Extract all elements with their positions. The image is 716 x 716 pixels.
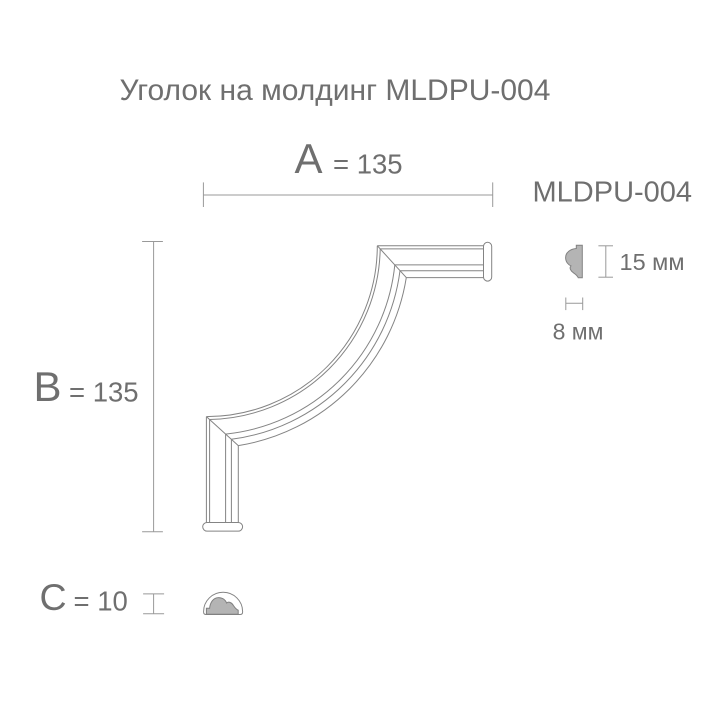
svg-text:A: A bbox=[295, 135, 323, 182]
svg-text:8 мм: 8 мм bbox=[553, 319, 604, 345]
svg-text:= 135: = 135 bbox=[69, 377, 139, 408]
svg-text:B: B bbox=[34, 363, 62, 410]
svg-text:C: C bbox=[40, 576, 67, 618]
svg-text:Уголок на молдинг MLDPU-004: Уголок на молдинг MLDPU-004 bbox=[120, 74, 551, 107]
svg-text:= 10: = 10 bbox=[74, 586, 128, 617]
svg-text:15 мм: 15 мм bbox=[620, 249, 685, 275]
svg-text:= 135: = 135 bbox=[333, 148, 403, 179]
svg-text:MLDPU-004: MLDPU-004 bbox=[533, 177, 693, 209]
